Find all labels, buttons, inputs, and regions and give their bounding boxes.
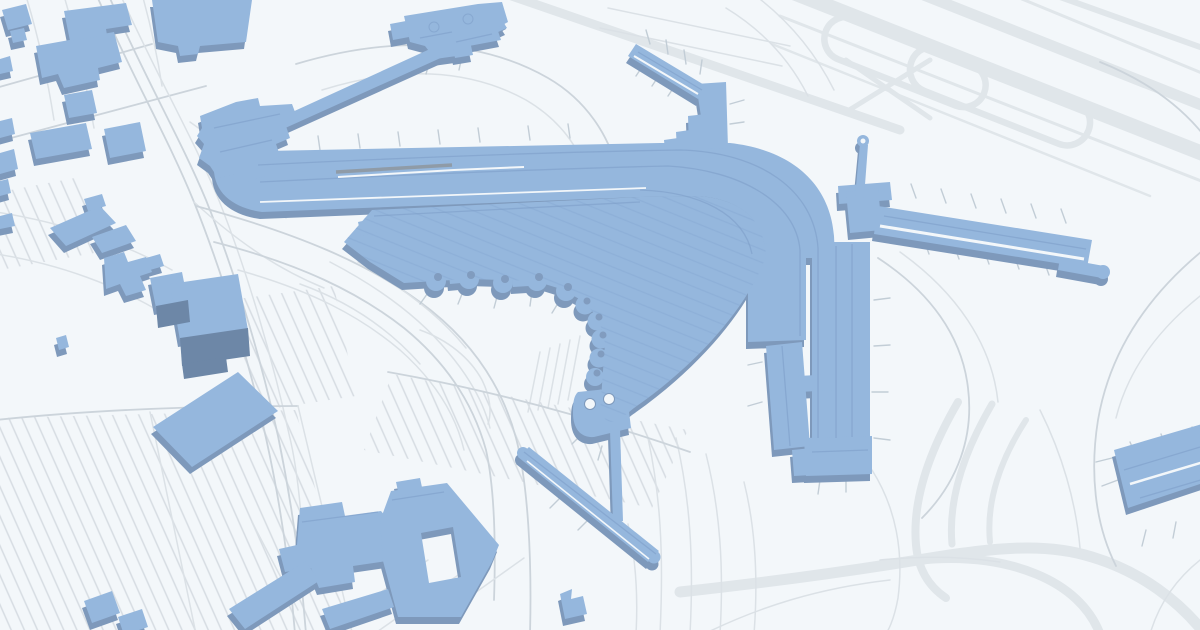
- airport-map-canvas: [0, 0, 1200, 630]
- airport-map-card: [0, 0, 1200, 630]
